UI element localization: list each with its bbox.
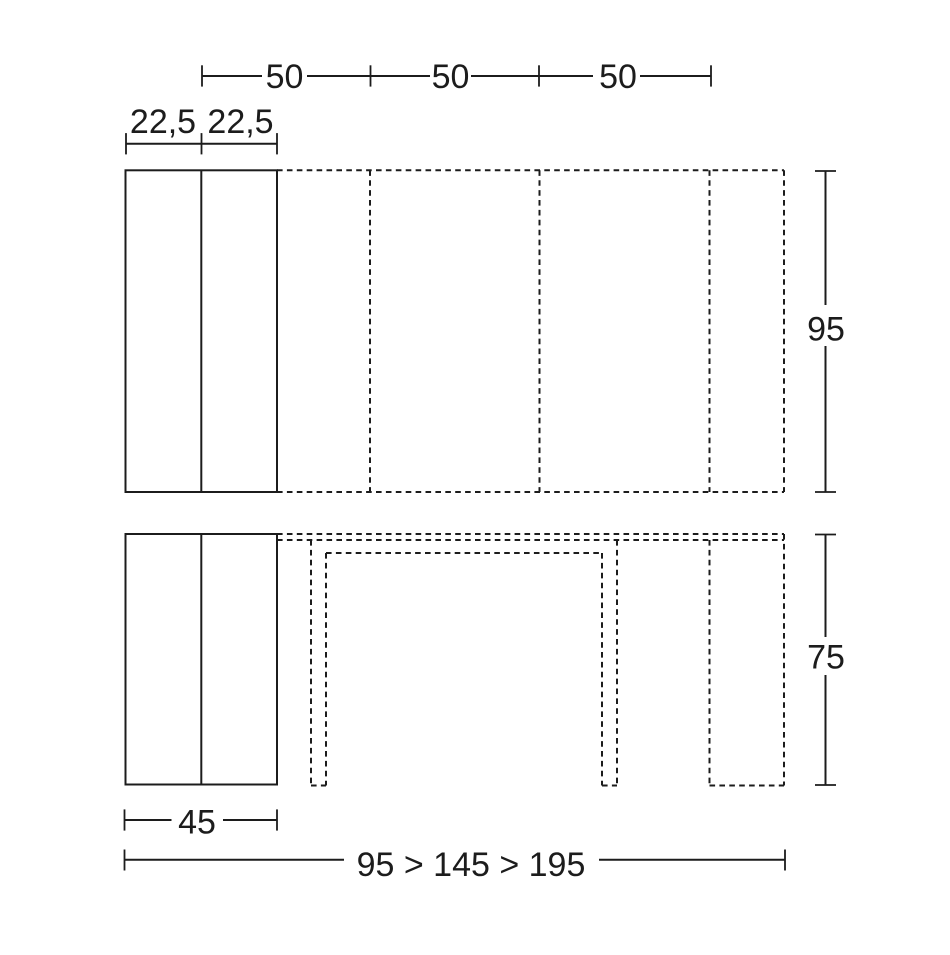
svg-text:75: 75 (807, 639, 845, 677)
svg-text:95: 95 (807, 311, 845, 349)
svg-text:50: 50 (266, 58, 304, 96)
svg-text:50: 50 (599, 58, 637, 96)
svg-text:22,5: 22,5 (130, 103, 196, 141)
svg-text:45: 45 (178, 804, 216, 842)
svg-text:22,5: 22,5 (207, 103, 273, 141)
svg-text:95 > 145 > 195: 95 > 145 > 195 (357, 846, 586, 884)
svg-text:50: 50 (432, 58, 470, 96)
